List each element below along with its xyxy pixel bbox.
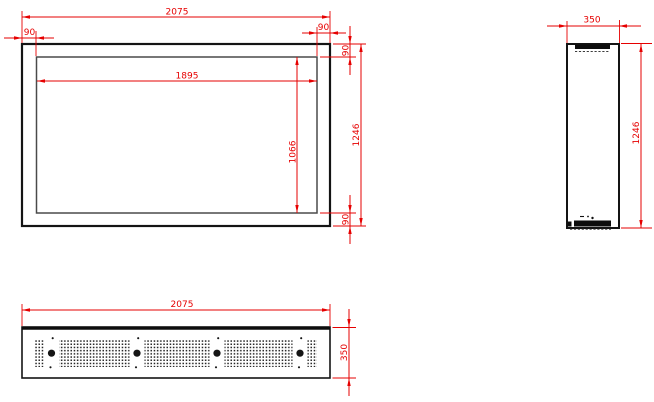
dim-label: 90 — [342, 45, 352, 57]
arrowhead — [309, 31, 317, 34]
front-view: 2075 90 90 1895 — [4, 8, 366, 245]
mount-hole — [133, 350, 140, 357]
arrowhead — [330, 31, 338, 34]
dim-front-overall-width: 2075 — [22, 8, 330, 44]
dim-label: 2075 — [166, 8, 189, 18]
detail-dot — [587, 216, 589, 218]
detail-dot — [300, 337, 302, 339]
dim-label: 90 — [318, 23, 330, 33]
arrowhead — [348, 36, 351, 44]
detail-dot — [52, 337, 54, 339]
detail-dot — [591, 217, 593, 219]
arrowhead — [559, 24, 567, 27]
dim-label: 90 — [342, 214, 352, 226]
side-profile-outline — [567, 44, 619, 228]
dim-label: 1895 — [176, 72, 199, 82]
arrowhead — [348, 57, 351, 65]
mount-hole — [213, 350, 220, 357]
detail-dot — [49, 366, 51, 368]
side-bottom-vent-bar — [574, 221, 611, 227]
arrowhead — [322, 15, 330, 18]
engineering-drawing-sheet: 2075 90 90 1895 — [0, 0, 654, 402]
side-bottom-corner-detail — [568, 222, 572, 227]
perforated-vent-grille — [35, 340, 317, 367]
mount-hole — [296, 350, 303, 357]
dim-bottom-depth: 350 — [333, 309, 357, 396]
dim-bottom-length: 2075 — [22, 300, 330, 326]
side-view: 350 1246 — [547, 16, 652, 230]
dim-side-height: 1246 — [621, 44, 652, 229]
detail-dot — [137, 337, 139, 339]
dim-front-frame-bottom: 90 — [342, 195, 352, 244]
dim-label: 350 — [340, 344, 350, 361]
arrowhead — [619, 24, 627, 27]
mount-hole — [48, 350, 55, 357]
dim-side-depth: 350 — [547, 16, 641, 44]
dim-label: 90 — [24, 28, 36, 38]
arrowhead — [36, 36, 44, 39]
detail-dot — [298, 366, 300, 368]
dim-front-overall-height: 1246 — [352, 44, 363, 226]
arrowhead — [639, 220, 642, 228]
detail-dot — [135, 366, 137, 368]
arrowhead — [348, 226, 351, 234]
arrowhead — [347, 378, 350, 386]
arrowhead — [347, 319, 350, 327]
arrowhead — [348, 205, 351, 213]
dim-label: 1066 — [289, 140, 299, 163]
side-top-vent-bar — [575, 45, 610, 50]
dim-label: 1246 — [352, 123, 362, 146]
detail-dot — [215, 366, 217, 368]
bottom-view: 2075 350 — [22, 300, 356, 396]
arrowhead — [359, 218, 362, 226]
detail-dot — [217, 337, 219, 339]
arrowhead — [22, 15, 30, 18]
dim-label: 1246 — [632, 121, 642, 144]
arrowhead — [359, 44, 362, 52]
arrowhead — [322, 308, 330, 311]
arrowhead — [639, 44, 642, 52]
dim-label: 2075 — [171, 300, 194, 310]
arrowhead — [22, 308, 30, 311]
dim-label: 350 — [583, 16, 600, 26]
arrowhead — [14, 36, 22, 39]
